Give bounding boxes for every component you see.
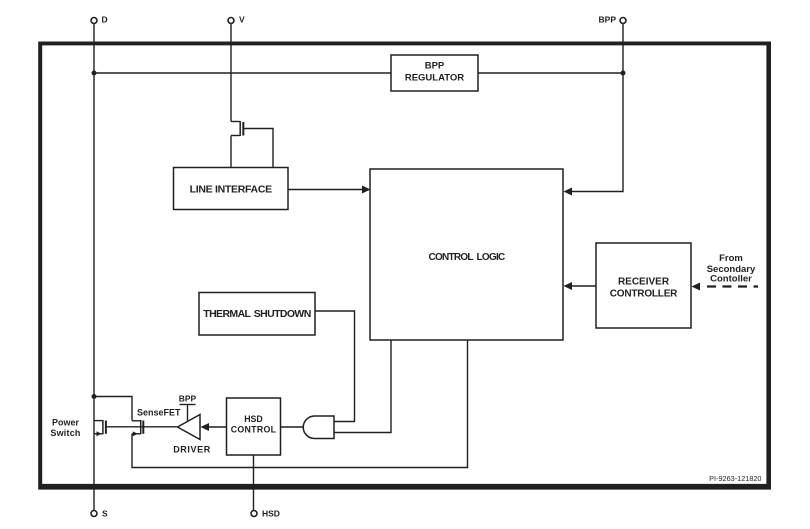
svg-text:HSD: HSD <box>244 414 263 424</box>
svg-text:Switch: Switch <box>50 428 80 438</box>
svg-text:CONTROLLER: CONTROLLER <box>610 289 678 300</box>
svg-text:Power: Power <box>52 418 80 428</box>
svg-text:PI-9263-121820: PI-9263-121820 <box>709 474 761 483</box>
svg-text:From: From <box>719 253 743 264</box>
svg-text:S: S <box>102 509 108 519</box>
svg-text:DRIVER: DRIVER <box>173 445 211 455</box>
svg-text:SenseFET: SenseFET <box>137 408 181 418</box>
svg-text:RECEIVER: RECEIVER <box>618 277 670 288</box>
svg-text:REGULATOR: REGULATOR <box>405 73 464 84</box>
svg-text:D: D <box>102 15 108 25</box>
svg-text:HSD: HSD <box>262 509 280 519</box>
svg-text:CONTROL: CONTROL <box>231 425 277 435</box>
svg-text:CONTROL LOGIC: CONTROL LOGIC <box>429 252 505 263</box>
svg-text:V: V <box>239 15 245 25</box>
svg-text:BPP: BPP <box>179 394 197 404</box>
svg-text:THERMAL SHUTDOWN: THERMAL SHUTDOWN <box>203 308 310 320</box>
svg-text:Contoller: Contoller <box>710 274 752 285</box>
svg-text:LINE INTERFACE: LINE INTERFACE <box>190 184 272 196</box>
svg-text:BPP: BPP <box>425 61 445 72</box>
svg-text:BPP: BPP <box>599 15 617 25</box>
